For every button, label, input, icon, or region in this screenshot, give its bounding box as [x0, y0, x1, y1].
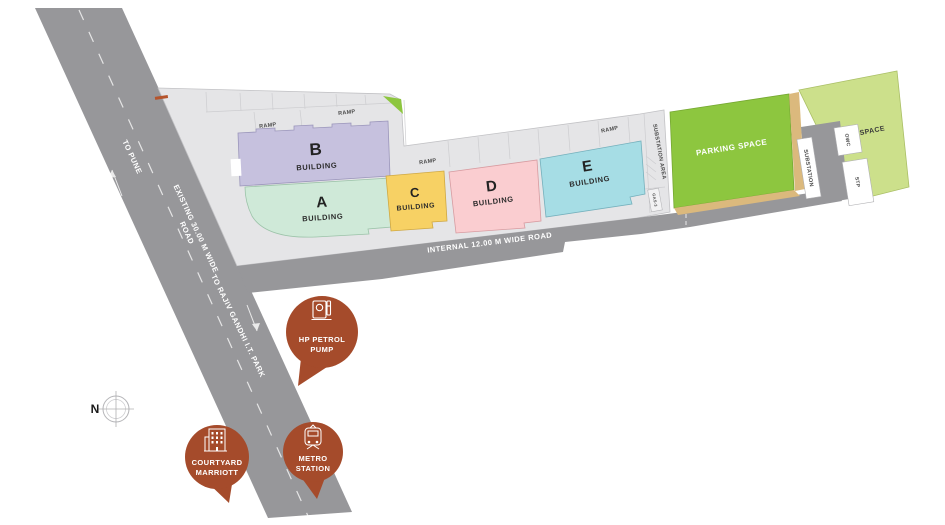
hp-label-line2: PUMP	[310, 345, 333, 354]
metro-label-line1: METRO	[298, 454, 327, 463]
marriott-label-line1: COURTYARD	[192, 458, 243, 467]
metro-label-line2: STATION	[296, 464, 331, 473]
north-compass: N	[91, 391, 134, 427]
north-label: N	[91, 402, 100, 416]
building-c[interactable]	[386, 171, 447, 231]
hp-pin-circle	[286, 296, 358, 368]
building-d-letter: D	[485, 177, 498, 195]
owc-box: OWC	[834, 124, 862, 155]
site-map: B BUILDING A BUILDING C BUILDING D BUILD…	[0, 0, 945, 525]
hp-label-line1: HP PETROL	[299, 335, 345, 344]
building-b-notch	[231, 159, 242, 177]
hp-petrol-pump-marker[interactable]: HP PETROL PUMP	[286, 296, 358, 386]
marriott-label-line2: MARRIOTT	[196, 468, 239, 477]
courtyard-marriott-marker[interactable]: COURTYARD MARRIOTT	[185, 425, 249, 503]
building-a-letter: A	[316, 194, 328, 212]
site-plan-canvas: B BUILDING A BUILDING C BUILDING D BUILD…	[0, 0, 945, 525]
building-b-letter: B	[309, 140, 323, 160]
marriott-pin-circle	[185, 425, 249, 489]
